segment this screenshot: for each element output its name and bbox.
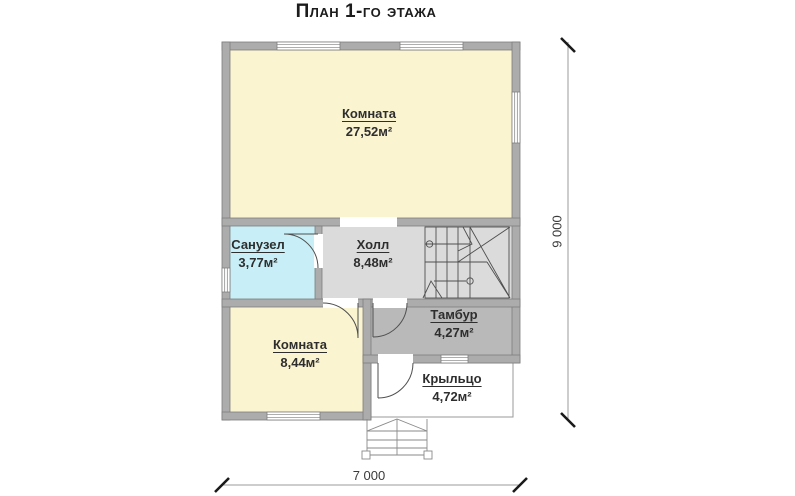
- room-area: 3,77м²: [231, 254, 284, 272]
- room-label-living: Комната 27,52м²: [342, 105, 396, 141]
- room-name: Комната: [273, 336, 327, 354]
- room-area: 8,48м²: [353, 254, 392, 272]
- room-label-tambour: Тамбур 4,27м²: [430, 306, 477, 342]
- porch-post-icon: [362, 451, 370, 459]
- room-area: 27,52м²: [342, 123, 396, 141]
- window-top-1: [277, 42, 340, 50]
- opening-tambour-porch: [378, 354, 413, 364]
- hall-floor: [322, 226, 512, 299]
- window-top-2: [400, 42, 463, 50]
- room-area: 8,44м²: [273, 354, 327, 372]
- opening-living-hall: [340, 217, 397, 227]
- porch-steps: [362, 419, 432, 459]
- floor-plan-page: План 1-го этажа: [0, 0, 795, 496]
- room-label-bathroom: Санузел 3,77м²: [231, 236, 284, 272]
- window-bottom: [267, 412, 320, 420]
- floor-plan-drawing: [0, 0, 795, 496]
- opening-bathroom: [314, 234, 323, 268]
- wall-exterior-top: [222, 42, 520, 50]
- wall-exterior-left: [222, 42, 230, 420]
- dimension-width-label: 7 000: [329, 468, 409, 483]
- room-name: Крыльцо: [422, 370, 481, 388]
- room-label-porch: Крыльцо 4,72м²: [422, 370, 481, 406]
- porch-post-icon: [424, 451, 432, 459]
- dimension-height-label: 9 000: [550, 211, 565, 253]
- opening-hall-tambour: [373, 298, 407, 308]
- room-area: 4,27м²: [430, 324, 477, 342]
- room-name: Тамбур: [430, 306, 477, 324]
- room-name: Санузел: [231, 236, 284, 254]
- room-name: Холл: [353, 236, 392, 254]
- room-name: Комната: [342, 105, 396, 123]
- room-label-hall: Холл 8,48м²: [353, 236, 392, 272]
- window-right: [512, 92, 520, 143]
- window-tambour: [441, 355, 468, 363]
- room-area: 4,72м²: [422, 388, 481, 406]
- wall-exterior-right: [512, 42, 520, 363]
- window-bathroom: [222, 268, 230, 292]
- room-label-bedroom: Комната 8,44м²: [273, 336, 327, 372]
